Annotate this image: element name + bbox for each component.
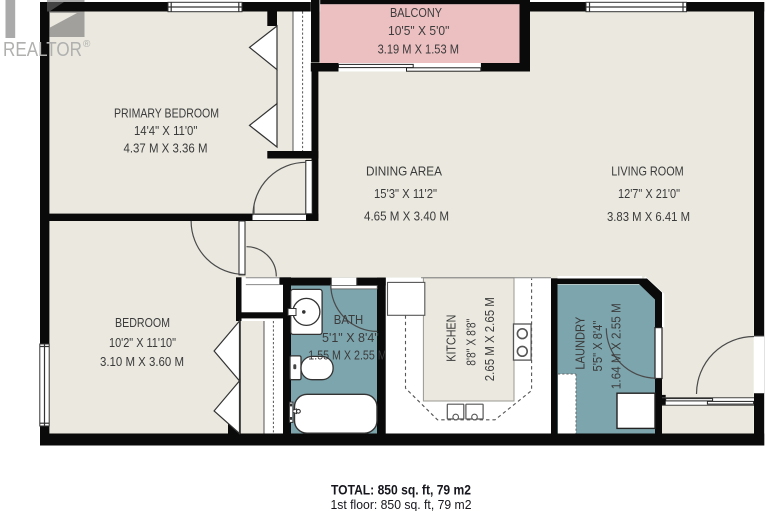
svg-text:10'2" X 11'10": 10'2" X 11'10": [109, 335, 176, 350]
svg-text:PRIMARY BEDROOM: PRIMARY BEDROOM: [114, 105, 219, 120]
svg-text:12'7" X 21'0": 12'7" X 21'0": [618, 186, 680, 201]
svg-text:1st floor: 850 sq. ft, 79 m2: 1st floor: 850 sq. ft, 79 m2: [331, 497, 472, 511]
svg-text:10'5" X 5'0": 10'5" X 5'0": [388, 23, 450, 38]
svg-text:3.19 M X 1.53 M: 3.19 M X 1.53 M: [378, 41, 459, 56]
svg-text:1.55 M X 2.55 M: 1.55 M X 2.55 M: [308, 348, 386, 363]
svg-text:8'8" X 8'8": 8'8" X 8'8": [463, 318, 478, 365]
svg-text:4.65 M X 3.40 M: 4.65 M X 3.40 M: [364, 208, 449, 223]
svg-text:REALTOR: REALTOR: [3, 39, 82, 61]
svg-text:4.37 M X 3.36 M: 4.37 M X 3.36 M: [124, 141, 208, 156]
svg-text:5'1" X 8'4": 5'1" X 8'4": [322, 330, 379, 345]
svg-text:LAUNDRY: LAUNDRY: [572, 316, 587, 369]
svg-text:1.64 M X 2.55 M: 1.64 M X 2.55 M: [609, 303, 624, 389]
svg-text:TOTAL: 850 sq. ft, 79 m2: TOTAL: 850 sq. ft, 79 m2: [331, 483, 471, 498]
svg-text:BATH: BATH: [334, 312, 363, 327]
svg-text:BALCONY: BALCONY: [390, 5, 442, 20]
svg-text:KITCHEN: KITCHEN: [444, 315, 459, 362]
svg-text:3.10 M X 3.60 M: 3.10 M X 3.60 M: [100, 354, 184, 369]
svg-text:®: ®: [83, 39, 91, 50]
svg-text:BEDROOM: BEDROOM: [115, 315, 170, 330]
svg-text:2.65 M X 2.65 M: 2.65 M X 2.65 M: [482, 297, 497, 381]
svg-text:LIVING ROOM: LIVING ROOM: [611, 164, 684, 179]
svg-text:5'5" X 8'4": 5'5" X 8'4": [590, 320, 605, 371]
svg-text:15'3" X 11'2": 15'3" X 11'2": [374, 186, 437, 201]
svg-text:3.83 M X 6.41 M: 3.83 M X 6.41 M: [607, 209, 690, 224]
svg-text:DINING AREA: DINING AREA: [366, 164, 442, 179]
svg-text:14'4" X 11'0": 14'4" X 11'0": [134, 123, 198, 138]
